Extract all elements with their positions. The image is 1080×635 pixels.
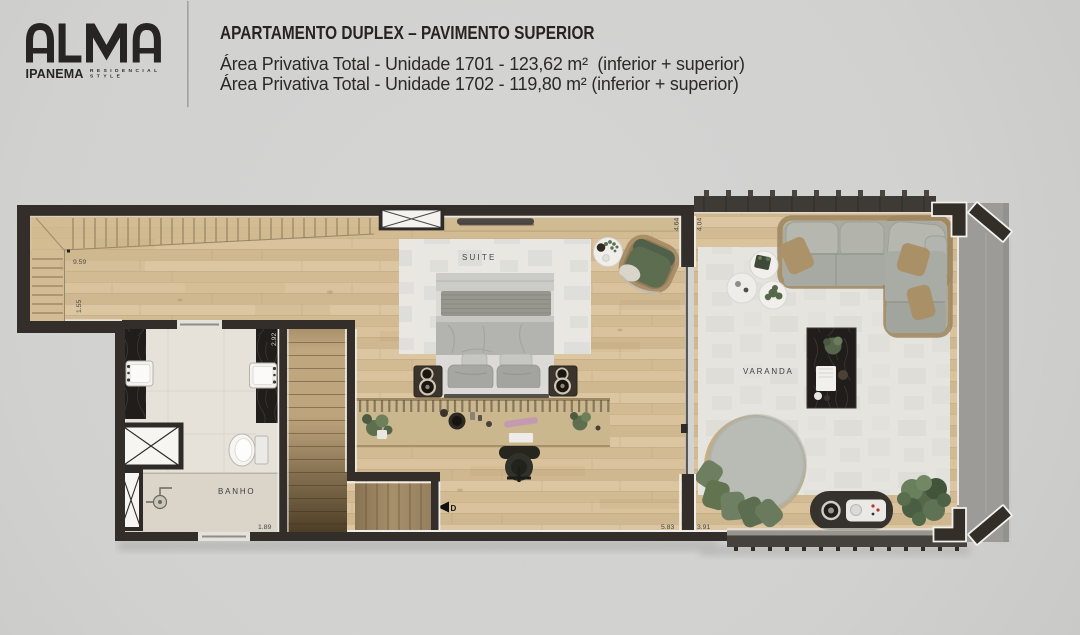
svg-text:4.64: 4.64 bbox=[674, 218, 681, 231]
svg-text:5.83: 5.83 bbox=[661, 524, 674, 531]
svg-text:STYLE: STYLE bbox=[90, 74, 123, 80]
svg-text:IPANEMA: IPANEMA bbox=[26, 67, 84, 81]
svg-text:2.92: 2.92 bbox=[271, 333, 278, 346]
svg-text:3.91: 3.91 bbox=[697, 524, 710, 531]
svg-text:1.89: 1.89 bbox=[258, 524, 271, 531]
svg-text:BANHO: BANHO bbox=[218, 487, 255, 496]
svg-text:VARANDA: VARANDA bbox=[743, 367, 794, 376]
svg-text:4.04: 4.04 bbox=[697, 218, 704, 231]
svg-text:SUITE: SUITE bbox=[462, 253, 497, 262]
svg-text:D: D bbox=[451, 504, 457, 513]
svg-text:1.55: 1.55 bbox=[76, 300, 83, 313]
svg-text:RESIDENCIAL: RESIDENCIAL bbox=[90, 68, 160, 74]
